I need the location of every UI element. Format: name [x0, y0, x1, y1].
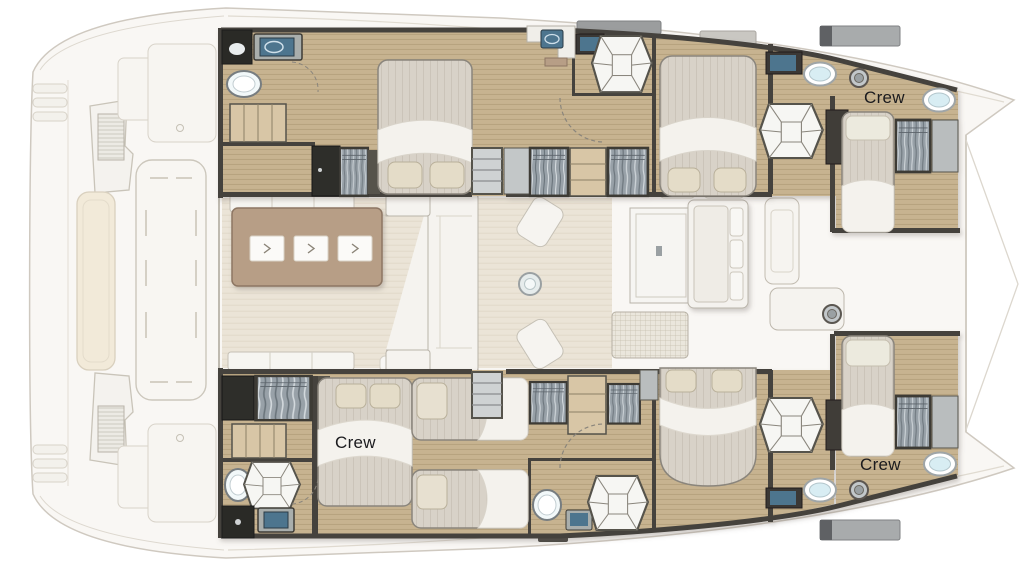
shelving [232, 424, 286, 458]
crew-cabin-label-starboard-aft: Crew [335, 433, 376, 452]
pillow [417, 475, 447, 509]
shower [592, 36, 652, 92]
locker-knob [318, 168, 322, 172]
table-leaf [338, 236, 372, 261]
pillow [336, 384, 366, 408]
shower [760, 398, 823, 452]
crew-cabin-label-port-bow: Crew [864, 88, 905, 107]
salon-table-group [232, 208, 382, 286]
wardrobe [896, 396, 930, 448]
salon-seat [386, 350, 430, 372]
wardrobe [530, 382, 567, 423]
washbasin [804, 479, 836, 502]
shower [760, 104, 823, 158]
forward-sofa-seat [694, 206, 728, 302]
pillow [712, 370, 742, 392]
pillow [846, 116, 890, 140]
winch [823, 305, 841, 323]
forward-sunpad [765, 198, 799, 284]
door-handle [656, 246, 662, 256]
salon-sofa-fwd [228, 352, 354, 370]
locker [504, 148, 530, 194]
wardrobe [608, 148, 648, 196]
pillow [370, 384, 400, 408]
wardrobe [530, 148, 568, 196]
sink-basin [770, 55, 796, 71]
bed-blanket [842, 180, 894, 232]
washbasin [804, 63, 836, 86]
pillow [668, 168, 700, 192]
pillow [388, 162, 422, 188]
wardrobe [896, 120, 930, 172]
locker [932, 396, 958, 448]
salon-side-unit [428, 194, 478, 372]
sink-basin [541, 30, 563, 48]
pillow [714, 168, 746, 192]
bed-blanket [842, 404, 894, 456]
deck-hatch-inner [525, 279, 536, 290]
companionway-steps-port [472, 148, 502, 194]
deck-locker-cap [820, 520, 832, 540]
catamaran-floorplan-svg [0, 0, 1024, 566]
locker [932, 120, 958, 172]
shower [588, 476, 648, 530]
wc-seat [229, 43, 245, 55]
floorplan-canvas: Crew Crew Crew [0, 0, 1024, 566]
cockpit-mesh-locker [612, 312, 688, 358]
companionway-steps-stbd [472, 372, 502, 418]
vanity-shelf [545, 58, 567, 66]
shower [244, 462, 300, 508]
stbd-inner-wall-a [221, 369, 472, 374]
wardrobe [256, 376, 311, 420]
dark-locker [222, 376, 254, 420]
toilet-bowl [538, 495, 556, 515]
pillow [666, 370, 696, 392]
shelving [568, 376, 606, 434]
winch [850, 481, 868, 499]
toilet-bowl [233, 76, 255, 92]
pillow [430, 162, 464, 188]
winch [850, 69, 868, 87]
deck-locker-cap [820, 26, 832, 46]
sink-basin [264, 512, 288, 528]
sofa-back-cushion [730, 272, 743, 300]
table-leaf [294, 236, 328, 261]
pillow [417, 383, 447, 419]
crew-cabin-label-starboard-bow: Crew [860, 455, 901, 474]
shelving [570, 148, 606, 196]
washbasin [923, 89, 955, 112]
sink-basin [570, 513, 588, 526]
bowsprit-lines [966, 140, 1018, 430]
stbd-shower-wall-h [528, 458, 654, 461]
port-shower-wall-h [572, 93, 654, 96]
forward-sofa-group [688, 200, 748, 308]
pillow [846, 340, 890, 366]
table-leaf [250, 236, 284, 261]
salon-seat [386, 194, 430, 216]
locker [640, 370, 658, 400]
locker-knob [235, 519, 241, 525]
wardrobe [340, 148, 368, 196]
washbasin [924, 453, 956, 476]
sink-basin [770, 491, 796, 505]
dark-locker [312, 146, 340, 196]
sofa-back-cushion [730, 240, 743, 268]
port-cabin-bulkhead [652, 34, 656, 194]
wardrobe [608, 384, 640, 424]
sofa-back-cushion [730, 208, 743, 236]
